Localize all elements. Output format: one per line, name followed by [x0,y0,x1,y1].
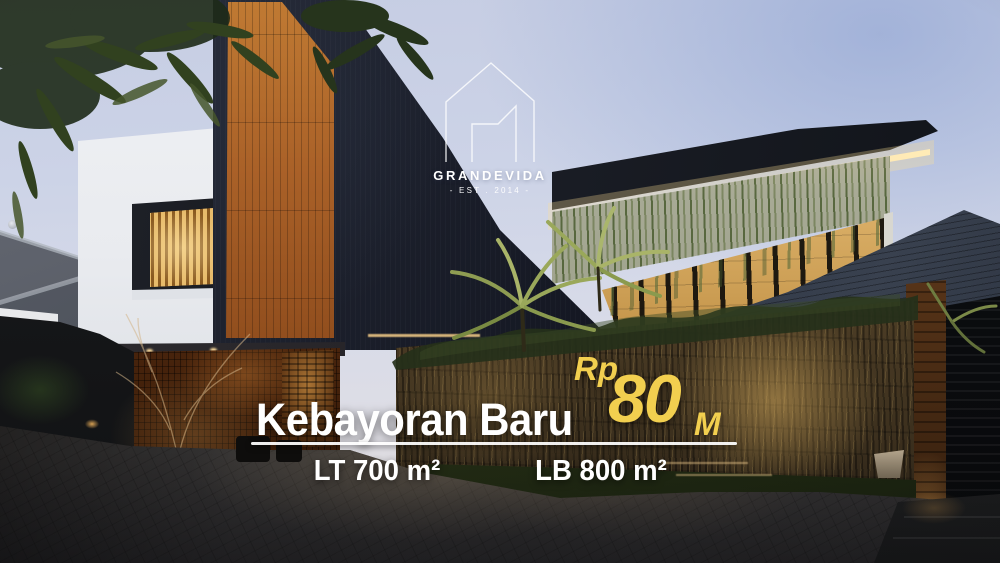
price-amount: 80 [608,360,680,438]
price-block: Rp 80 M [556,346,756,456]
divider-line [251,442,737,445]
brand-established: - EST . 2014 - [375,186,605,195]
house-outline-icon [434,50,546,166]
brand-logo: GRANDEVIDA - EST . 2014 - [375,50,605,195]
location-title: Kebayoran Baru [256,394,573,446]
property-poster: GRANDEVIDA - EST . 2014 - Kebayoran Baru… [0,0,1000,563]
brand-name: GRANDEVIDA [375,168,605,183]
building-area-label: LB 800 m² [530,455,673,488]
land-area-label: LT 700 m² [306,455,449,488]
price-unit: M [694,406,721,443]
